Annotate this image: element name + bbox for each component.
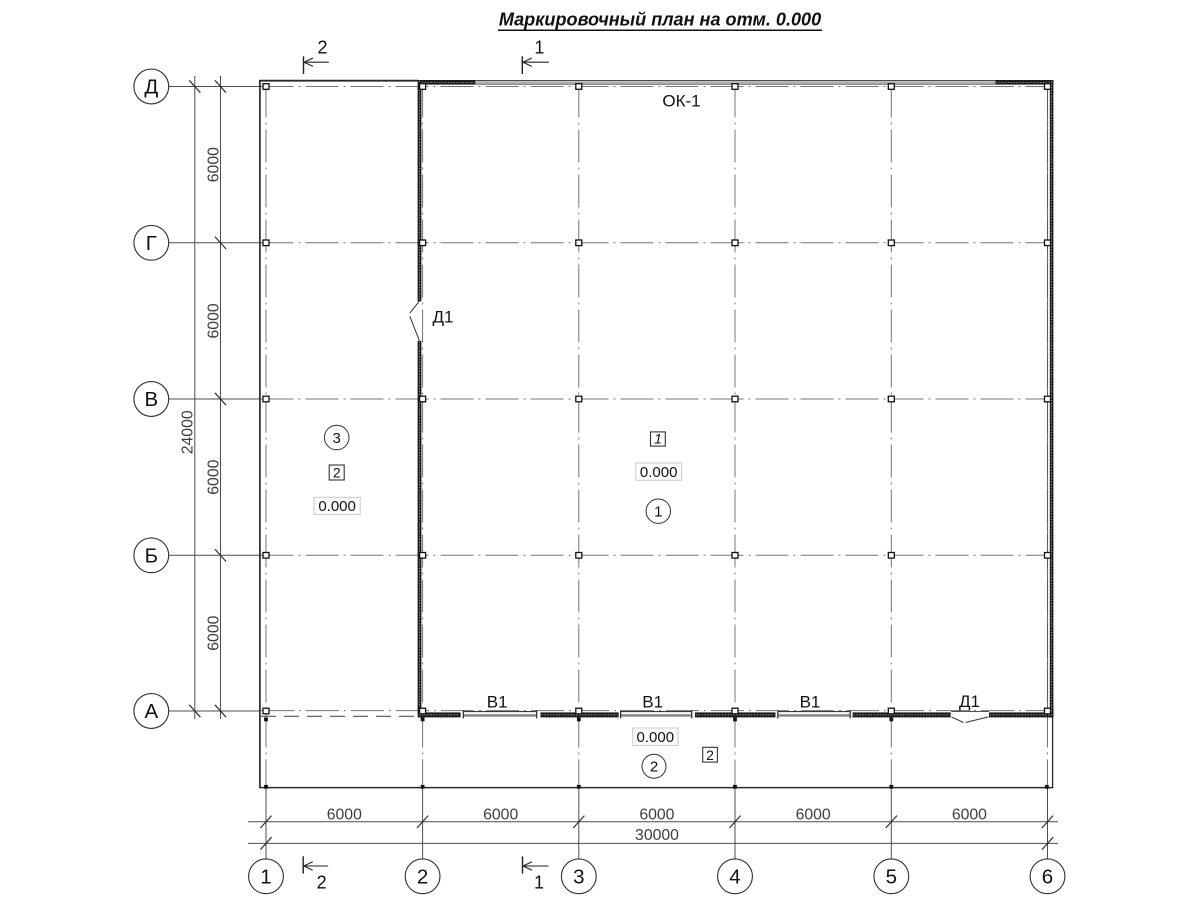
svg-text:Г: Г xyxy=(146,232,157,255)
svg-text:2: 2 xyxy=(317,38,327,58)
svg-text:2: 2 xyxy=(706,747,714,763)
svg-text:Д: Д xyxy=(144,76,158,99)
svg-text:ОК-1: ОК-1 xyxy=(662,92,700,111)
svg-text:Д1: Д1 xyxy=(959,692,980,711)
svg-text:Маркировочный план на отм. 0.0: Маркировочный план на отм. 0.000 xyxy=(499,10,821,30)
svg-text:2: 2 xyxy=(650,759,658,776)
svg-text:2: 2 xyxy=(333,465,341,481)
svg-text:В1: В1 xyxy=(800,693,821,712)
svg-text:6000: 6000 xyxy=(206,459,223,494)
svg-text:6000: 6000 xyxy=(206,615,223,650)
svg-text:1: 1 xyxy=(534,38,544,58)
svg-text:1: 1 xyxy=(654,504,662,521)
svg-text:6000: 6000 xyxy=(796,806,831,823)
svg-text:6000: 6000 xyxy=(206,303,223,338)
svg-text:0.000: 0.000 xyxy=(318,498,356,515)
svg-text:6000: 6000 xyxy=(327,806,362,823)
svg-text:2: 2 xyxy=(417,866,428,889)
svg-text:0.000: 0.000 xyxy=(640,464,678,481)
svg-text:30000: 30000 xyxy=(635,827,679,844)
svg-text:1: 1 xyxy=(654,431,662,447)
svg-text:3: 3 xyxy=(333,430,341,447)
svg-text:В: В xyxy=(144,388,158,411)
svg-text:В1: В1 xyxy=(642,693,663,712)
svg-text:6000: 6000 xyxy=(639,806,674,823)
svg-text:Д1: Д1 xyxy=(433,308,454,327)
svg-text:0.000: 0.000 xyxy=(637,729,675,746)
svg-text:А: А xyxy=(144,700,158,723)
svg-text:24000: 24000 xyxy=(180,410,197,454)
svg-text:В1: В1 xyxy=(487,693,508,712)
svg-text:6000: 6000 xyxy=(952,806,987,823)
svg-text:2: 2 xyxy=(317,873,327,893)
svg-text:6: 6 xyxy=(1042,866,1053,889)
svg-text:1: 1 xyxy=(534,873,544,893)
svg-text:6000: 6000 xyxy=(483,806,518,823)
svg-text:6000: 6000 xyxy=(206,147,223,182)
svg-text:3: 3 xyxy=(573,866,584,889)
svg-text:5: 5 xyxy=(886,866,897,889)
svg-text:Б: Б xyxy=(145,545,158,568)
svg-text:1: 1 xyxy=(260,866,271,889)
svg-text:4: 4 xyxy=(729,866,740,889)
